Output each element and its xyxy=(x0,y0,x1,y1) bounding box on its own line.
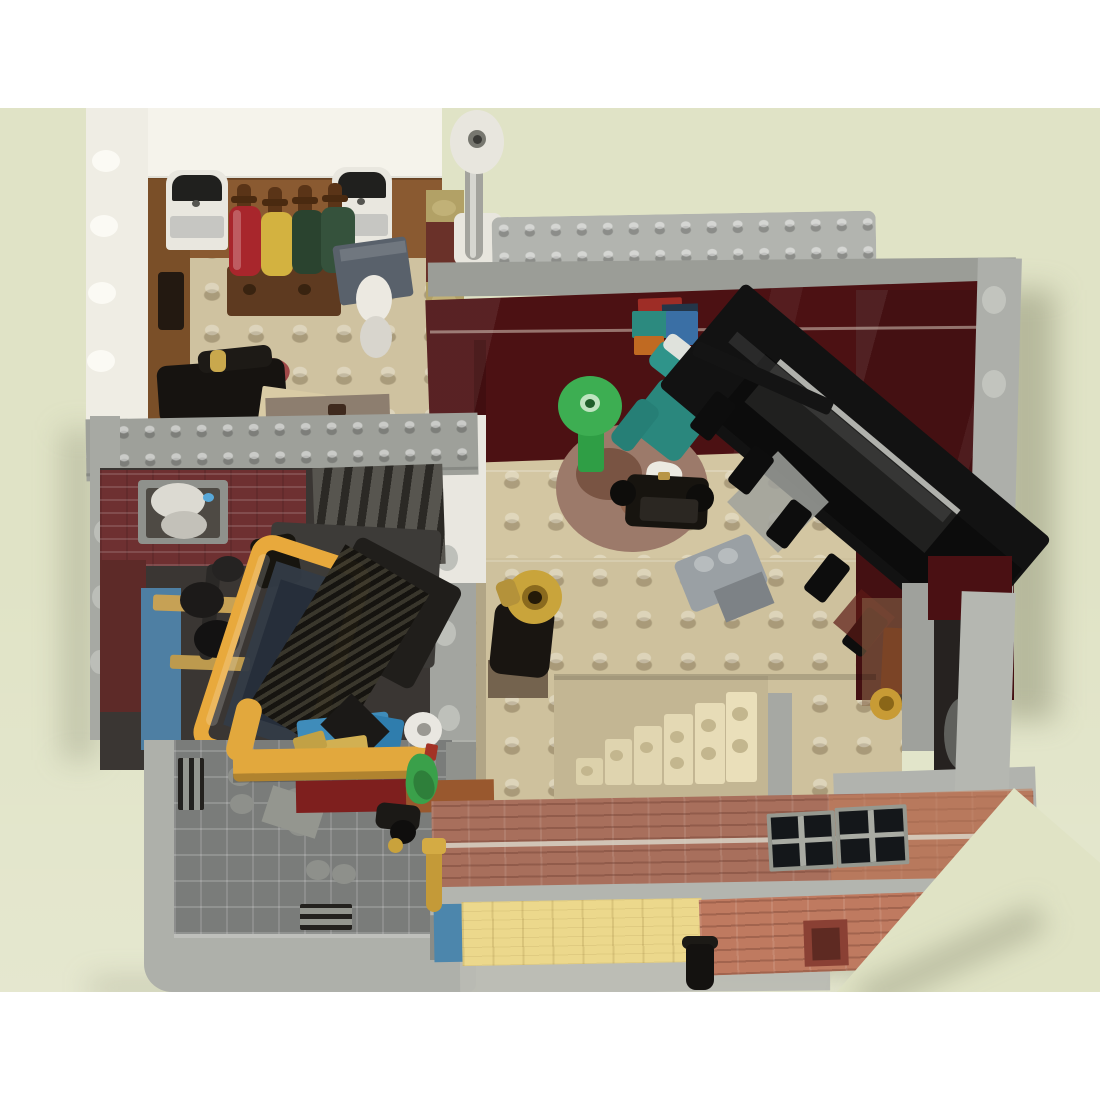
tan-step xyxy=(605,739,632,785)
drain-grille xyxy=(178,758,204,810)
stair-pit-shadow xyxy=(554,674,876,680)
step-tube xyxy=(732,739,748,753)
facade-door-inner xyxy=(811,928,840,961)
brick-stud xyxy=(718,548,738,564)
pavement-stud xyxy=(230,794,254,814)
wall-stud xyxy=(87,350,115,372)
facade-blue-corner xyxy=(433,904,464,963)
street-lamp-head-dot xyxy=(473,135,482,144)
pressroom-brick-lower xyxy=(100,560,146,712)
step-tube xyxy=(640,742,653,753)
handle-crossbar xyxy=(292,197,318,204)
wall-stud xyxy=(88,282,116,304)
gramophone-horn-hole xyxy=(528,591,542,604)
faucet-gold-tip xyxy=(388,838,403,853)
window-glint-blue xyxy=(203,493,214,502)
stand-cylinder-red-highlight xyxy=(233,210,241,270)
crate-hole xyxy=(298,284,311,295)
step-tube xyxy=(701,719,716,732)
wall-stud xyxy=(92,150,120,172)
exhaust-pipe xyxy=(686,944,714,990)
stand-cylinder-yellow xyxy=(261,212,293,276)
ceiling-lamp-bottom xyxy=(161,511,207,539)
typewriter-knob-left xyxy=(610,480,636,506)
cup-stack-bottom xyxy=(360,316,392,358)
wall-stud xyxy=(90,215,118,237)
handle-crossbar xyxy=(262,199,288,206)
tan-step xyxy=(726,692,757,782)
wall-stud xyxy=(982,286,1006,314)
tan-step xyxy=(664,714,693,785)
handle-crossbar xyxy=(231,196,257,203)
wall-lamp-gold-inner xyxy=(879,696,894,711)
dumbbell-weight xyxy=(180,582,224,618)
desk-lamp-hole-dot xyxy=(585,399,595,408)
wall-stud xyxy=(432,200,456,216)
cash-register-left-drawer xyxy=(170,216,224,238)
gold-tassel-top xyxy=(422,838,446,854)
step-tube xyxy=(670,731,684,743)
stand-cylinder-green xyxy=(292,210,324,274)
tan-step xyxy=(634,726,662,785)
step-tube xyxy=(581,766,593,776)
typewriter-gold-lever xyxy=(658,472,670,480)
sidewalk-curb-line xyxy=(174,934,452,938)
lego-building-top-view-render xyxy=(0,0,1100,1100)
wall-stud xyxy=(982,370,1006,398)
dumbbell-weight xyxy=(212,556,244,582)
margin-band-top xyxy=(0,0,1100,108)
step-tube xyxy=(670,757,684,769)
stairwell-cap-vertical xyxy=(954,591,1015,805)
handle-crossbar xyxy=(322,195,348,202)
cash-register-left-window xyxy=(172,175,222,201)
facade-yellow-awning xyxy=(461,898,702,966)
pavement-stud xyxy=(332,864,356,884)
pavement-stud xyxy=(306,860,330,880)
margin-band-bottom xyxy=(0,992,1100,1100)
cash-register-left-dot xyxy=(192,200,200,207)
step-tube xyxy=(701,747,716,760)
sewing-machine-spool xyxy=(210,350,226,372)
crate-hole xyxy=(243,284,256,295)
tan-step xyxy=(695,703,725,784)
gold-tassel xyxy=(426,846,442,912)
cash-register-right-dot xyxy=(357,198,365,205)
saloon-doorway xyxy=(158,272,184,330)
pressroom-blue-wall xyxy=(141,588,181,750)
paper-roll-hole xyxy=(417,723,431,736)
crate-stack-teal xyxy=(632,311,670,338)
typewriter-keys xyxy=(639,496,698,523)
step-tube xyxy=(610,750,623,761)
drain-grille xyxy=(300,904,352,930)
step-tube xyxy=(732,707,748,721)
brick-stud xyxy=(694,556,714,572)
